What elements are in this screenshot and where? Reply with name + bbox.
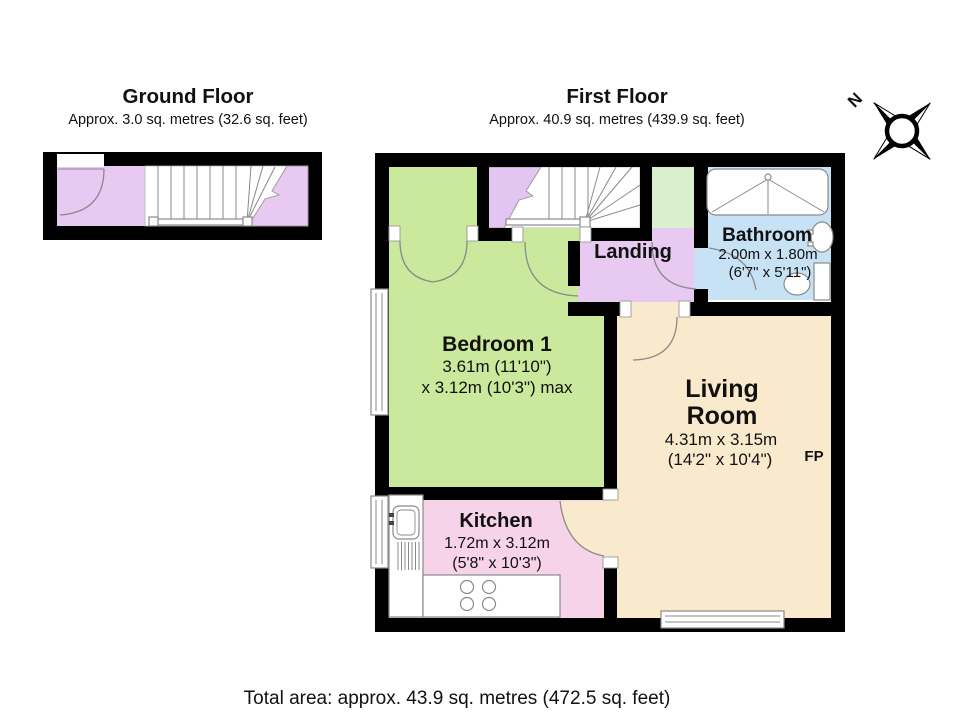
drainer-lines xyxy=(398,542,419,570)
kitchen-dim-imperial: (5'8" x 10'3") xyxy=(452,555,542,572)
compass-circle xyxy=(887,116,917,146)
bathroom-label: Bathroom xyxy=(722,225,812,246)
first-floor-title: First Floor xyxy=(566,85,667,108)
living-room-label-line2: Room xyxy=(687,402,758,430)
floorplan-page: Ground Floor Approx. 3.0 sq. metres (32.… xyxy=(0,0,980,712)
bathroom-dim-imperial: (6'7" x 5'11") xyxy=(729,264,812,281)
compass-north-label: N xyxy=(844,89,866,111)
kitchen-label: Kitchen xyxy=(459,510,532,532)
stairs-first-symbol xyxy=(488,167,640,228)
bathroom-dim-metric: 2.00m x 1.80m xyxy=(718,246,817,263)
living-room-window-symbol xyxy=(661,611,784,628)
total-area-label: Total area: approx. 43.9 sq. metres (472… xyxy=(244,688,671,709)
living-room-dim-imperial: (14'2" x 10'4") xyxy=(668,450,773,469)
kitchen-sink-icon xyxy=(389,506,419,539)
front-door-opening xyxy=(57,154,104,167)
kitchen-dim-metric: 1.72m x 3.12m xyxy=(444,535,550,552)
ground-floor-title: Ground Floor xyxy=(123,85,254,108)
landing-label: Landing xyxy=(594,241,672,263)
living-room-dim-metric: 4.31m x 3.15m xyxy=(665,430,777,449)
stairs-ground-symbol xyxy=(145,166,308,226)
first-floor-plan: Bedroom 1 3.61m (11'10") x 3.12m (10'3")… xyxy=(371,153,845,632)
ground-floor-plan xyxy=(43,152,322,240)
bedroom-label: Bedroom 1 xyxy=(442,333,552,356)
bedroom-window-symbol xyxy=(371,289,388,415)
bedroom-dim-imperial: x 3.12m (10'3") max xyxy=(422,378,573,397)
kitchen-window-symbol xyxy=(371,496,388,568)
compass-rose-icon: N xyxy=(844,74,959,187)
floorplan-canvas: Ground Floor Approx. 3.0 sq. metres (32.… xyxy=(0,0,980,712)
bedroom-dim-metric: 3.61m (11'10") xyxy=(442,357,551,376)
living-room-label-line1: Living xyxy=(685,375,759,403)
fireplace-label: FP xyxy=(804,448,823,465)
ground-floor-area: Approx. 3.0 sq. metres (32.6 sq. feet) xyxy=(68,112,307,128)
bathtub-icon xyxy=(707,169,828,215)
first-floor-area: Approx. 40.9 sq. metres (439.9 sq. feet) xyxy=(489,112,745,128)
